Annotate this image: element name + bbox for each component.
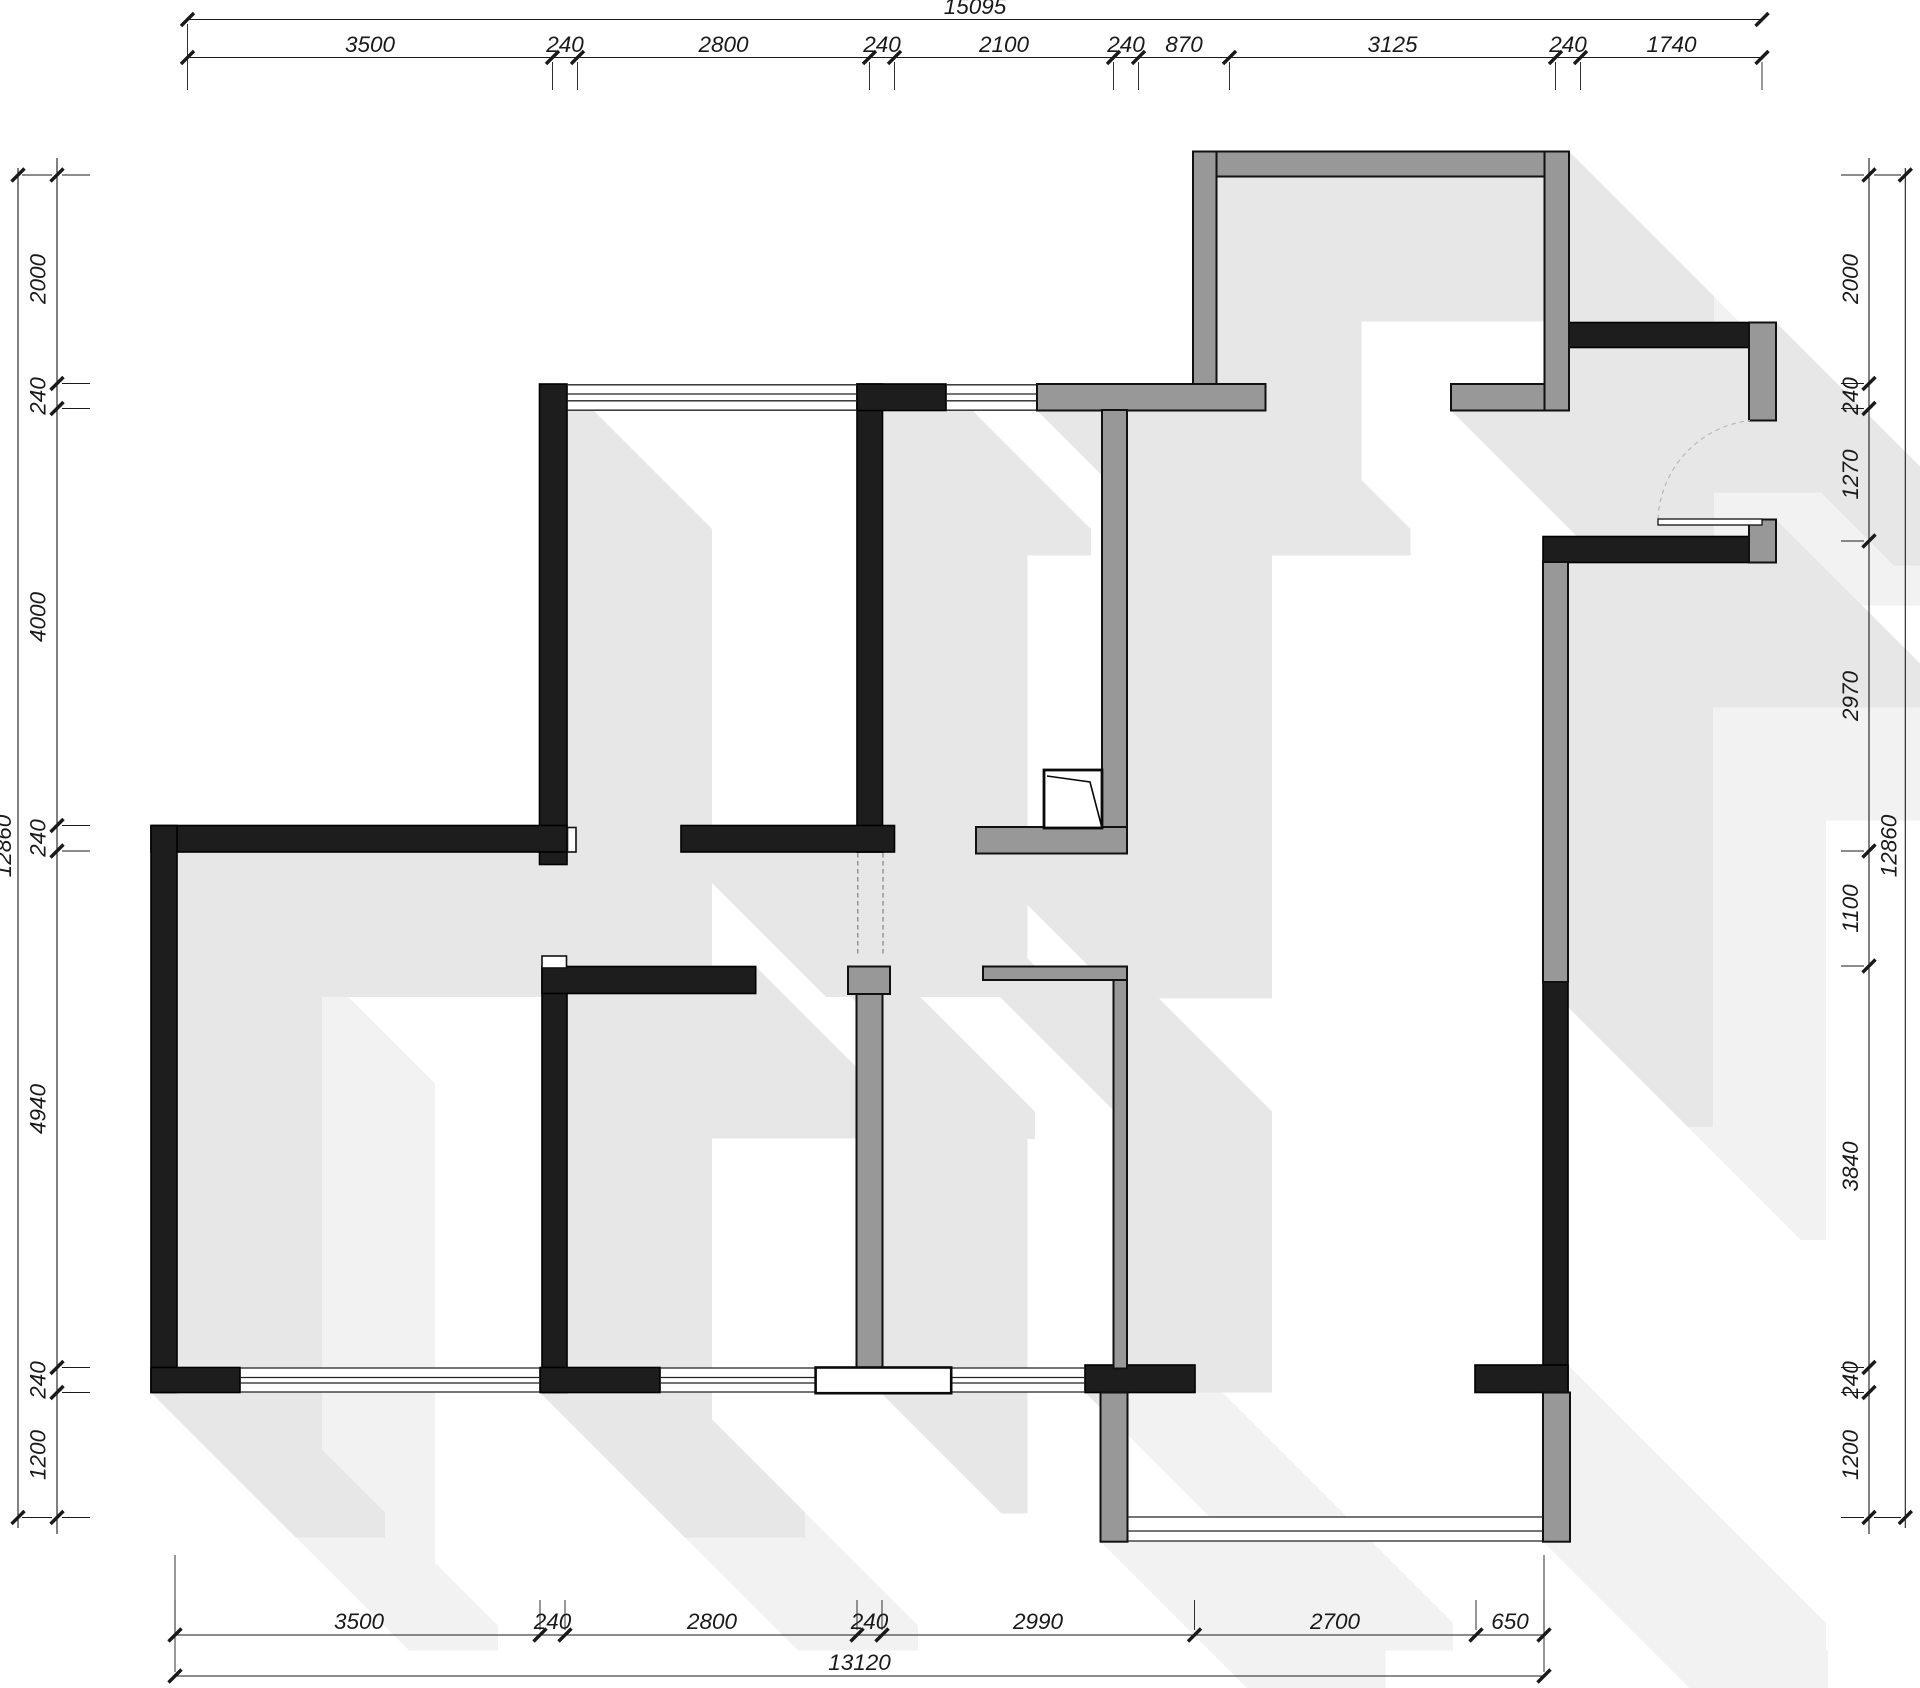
svg-text:2000: 2000 [26,253,51,305]
svg-text:4940: 4940 [26,1083,51,1134]
svg-text:1270: 1270 [1838,449,1863,500]
svg-text:1200: 1200 [1838,1429,1863,1480]
svg-text:3500: 3500 [345,32,396,57]
svg-text:1740: 1740 [1646,32,1697,57]
svg-text:240: 240 [850,1609,889,1634]
svg-text:13120: 13120 [828,1650,891,1675]
svg-text:2990: 2990 [1012,1609,1064,1634]
svg-text:12860: 12860 [0,814,16,877]
svg-text:240: 240 [1548,32,1587,57]
svg-text:240: 240 [1106,32,1145,57]
svg-text:2800: 2800 [686,1609,738,1634]
svg-text:240: 240 [1838,377,1863,416]
svg-text:870: 870 [1165,32,1203,57]
svg-text:240: 240 [26,819,51,858]
svg-text:1100: 1100 [1838,884,1863,933]
svg-text:240: 240 [545,32,584,57]
svg-text:4000: 4000 [26,591,51,642]
svg-text:240: 240 [862,32,901,57]
svg-text:2000: 2000 [1838,253,1863,305]
svg-text:12860: 12860 [1877,814,1902,877]
svg-text:240: 240 [1838,1361,1863,1400]
svg-text:1200: 1200 [26,1429,51,1480]
svg-text:3500: 3500 [334,1609,385,1634]
svg-text:3125: 3125 [1367,32,1418,57]
svg-text:2100: 2100 [978,32,1030,57]
svg-text:240: 240 [26,1361,51,1400]
svg-text:240: 240 [26,377,51,416]
svg-text:15095: 15095 [944,0,1007,19]
svg-text:240: 240 [533,1609,572,1634]
svg-text:650: 650 [1491,1609,1529,1634]
svg-text:3840: 3840 [1838,1141,1863,1192]
svg-text:2800: 2800 [697,32,749,57]
svg-text:2700: 2700 [1309,1609,1361,1634]
svg-text:2970: 2970 [1838,670,1863,722]
